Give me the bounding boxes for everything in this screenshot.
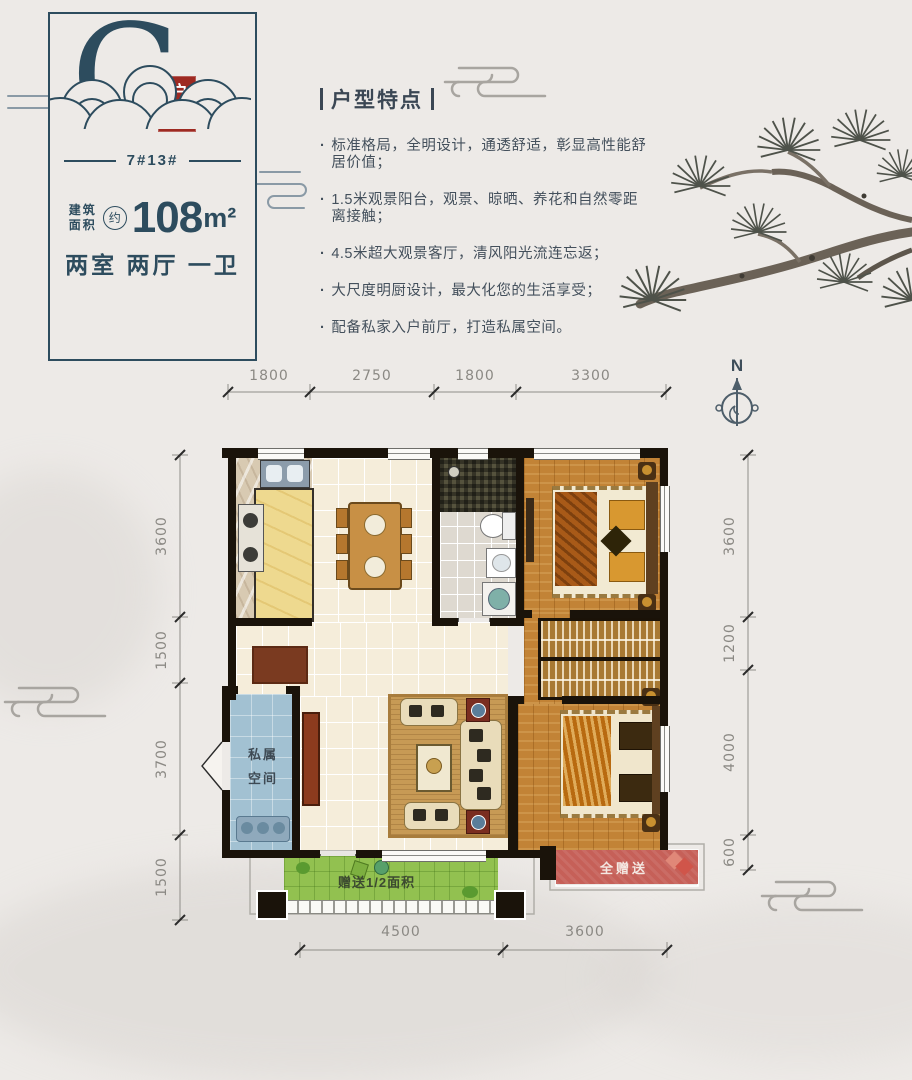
window (660, 486, 670, 552)
dim-right-4: 600 (722, 817, 738, 887)
chair (400, 560, 412, 580)
sofa-long (460, 720, 502, 810)
window (534, 448, 640, 460)
burner (243, 513, 258, 528)
wall (524, 610, 532, 618)
wall (540, 846, 556, 880)
kitchen-sink (260, 460, 310, 488)
stove (238, 504, 264, 572)
sofa-pillow (409, 705, 422, 717)
bedroom2-headboard (646, 482, 658, 594)
gift-full-label: 全赠送 (600, 858, 648, 877)
bedroom2-bed (552, 486, 654, 598)
sofa-small-bottom (404, 802, 460, 830)
wall (292, 690, 300, 850)
window (258, 448, 304, 460)
balcony-railing (284, 900, 500, 914)
wall (516, 448, 524, 626)
bench-decor (273, 822, 285, 834)
place-setting (364, 514, 386, 536)
side-table (466, 698, 490, 722)
sofa-pillow (469, 769, 483, 782)
sink-basin (287, 465, 303, 482)
blanket (555, 492, 597, 586)
dim-top-4: 3300 (556, 368, 626, 384)
balcony-pier (496, 892, 524, 918)
shoe-bench (236, 816, 290, 842)
dim-bottom-1: 4500 (366, 924, 436, 940)
chair (336, 560, 348, 580)
dim-left-1: 3600 (154, 501, 170, 571)
wall (228, 448, 236, 700)
blanket (563, 716, 611, 806)
window (382, 850, 486, 862)
washing-machine (482, 582, 516, 616)
wall (486, 850, 548, 858)
table-decor (426, 758, 442, 774)
wall (286, 686, 300, 694)
wardrobe-closet (538, 618, 666, 660)
chair (400, 508, 412, 528)
wall (222, 690, 230, 742)
dim-left-2: 1500 (154, 615, 170, 685)
wall (432, 448, 440, 626)
balcony-plant (296, 862, 310, 874)
balcony-pier (258, 892, 286, 918)
nightstand (638, 462, 656, 480)
private-space-label-line2: 空间 (240, 768, 286, 787)
bench-decor (241, 822, 253, 834)
wall (508, 696, 518, 850)
doormat (252, 646, 308, 684)
wall (562, 696, 668, 704)
pillow (609, 552, 645, 582)
tv-cabinet (302, 712, 320, 806)
chair (336, 534, 348, 554)
bath-sink (486, 548, 516, 578)
sofa-pillow (477, 749, 491, 762)
plant (471, 703, 486, 718)
wall (292, 850, 320, 858)
dim-right-2: 1200 (722, 608, 738, 678)
dim-left-4: 1500 (154, 842, 170, 912)
sink-basin (266, 465, 282, 482)
poster-page: { "unit_card": { "letter": "G", "seal": … (0, 0, 912, 993)
burner (243, 547, 258, 562)
nightstand (642, 814, 660, 832)
balcony-plant (462, 886, 478, 898)
sofa-pillow (413, 809, 426, 821)
window (388, 448, 430, 460)
side-table (466, 810, 490, 834)
chair (336, 508, 348, 528)
floor-plan: 私属 空间 全赠送 赠送1/2面积 1800 2750 1800 3300 36… (0, 0, 912, 993)
dim-top-2: 2750 (337, 368, 407, 384)
master-bed (560, 710, 662, 818)
sofa-pillow (431, 705, 444, 717)
pillow (619, 722, 653, 750)
private-space-label-line1: 私属 (240, 744, 286, 763)
bedroom2-tv-console (526, 498, 534, 562)
sofa-pillow (469, 729, 483, 742)
bench-decor (257, 822, 269, 834)
wall (490, 618, 524, 626)
dim-right-1: 3600 (722, 501, 738, 571)
wall (222, 790, 230, 858)
sink-bowl (492, 554, 511, 572)
coffee-table (416, 744, 452, 792)
dim-right-3: 4000 (722, 717, 738, 787)
dining-table (348, 502, 402, 590)
dim-left-3: 3700 (154, 724, 170, 794)
sofa-pillow (477, 787, 491, 800)
washer-drum (488, 588, 510, 610)
shower-head (448, 466, 460, 478)
dim-top-1: 1800 (234, 368, 304, 384)
toilet-tank (502, 512, 516, 540)
window (660, 726, 670, 792)
place-setting (364, 556, 386, 578)
plant (471, 815, 486, 830)
window (458, 448, 488, 460)
wall (570, 610, 668, 618)
gift-half-label: 赠送1/2面积 (338, 872, 415, 891)
dim-top-3: 1800 (440, 368, 510, 384)
wall (440, 618, 458, 626)
sofa-pillow (435, 809, 448, 821)
wall (222, 686, 238, 694)
wall (236, 618, 312, 626)
wall (356, 850, 382, 858)
sofa-small-top (400, 698, 458, 726)
dim-bottom-2: 3600 (550, 924, 620, 940)
pillow (619, 774, 653, 802)
chair (400, 534, 412, 554)
